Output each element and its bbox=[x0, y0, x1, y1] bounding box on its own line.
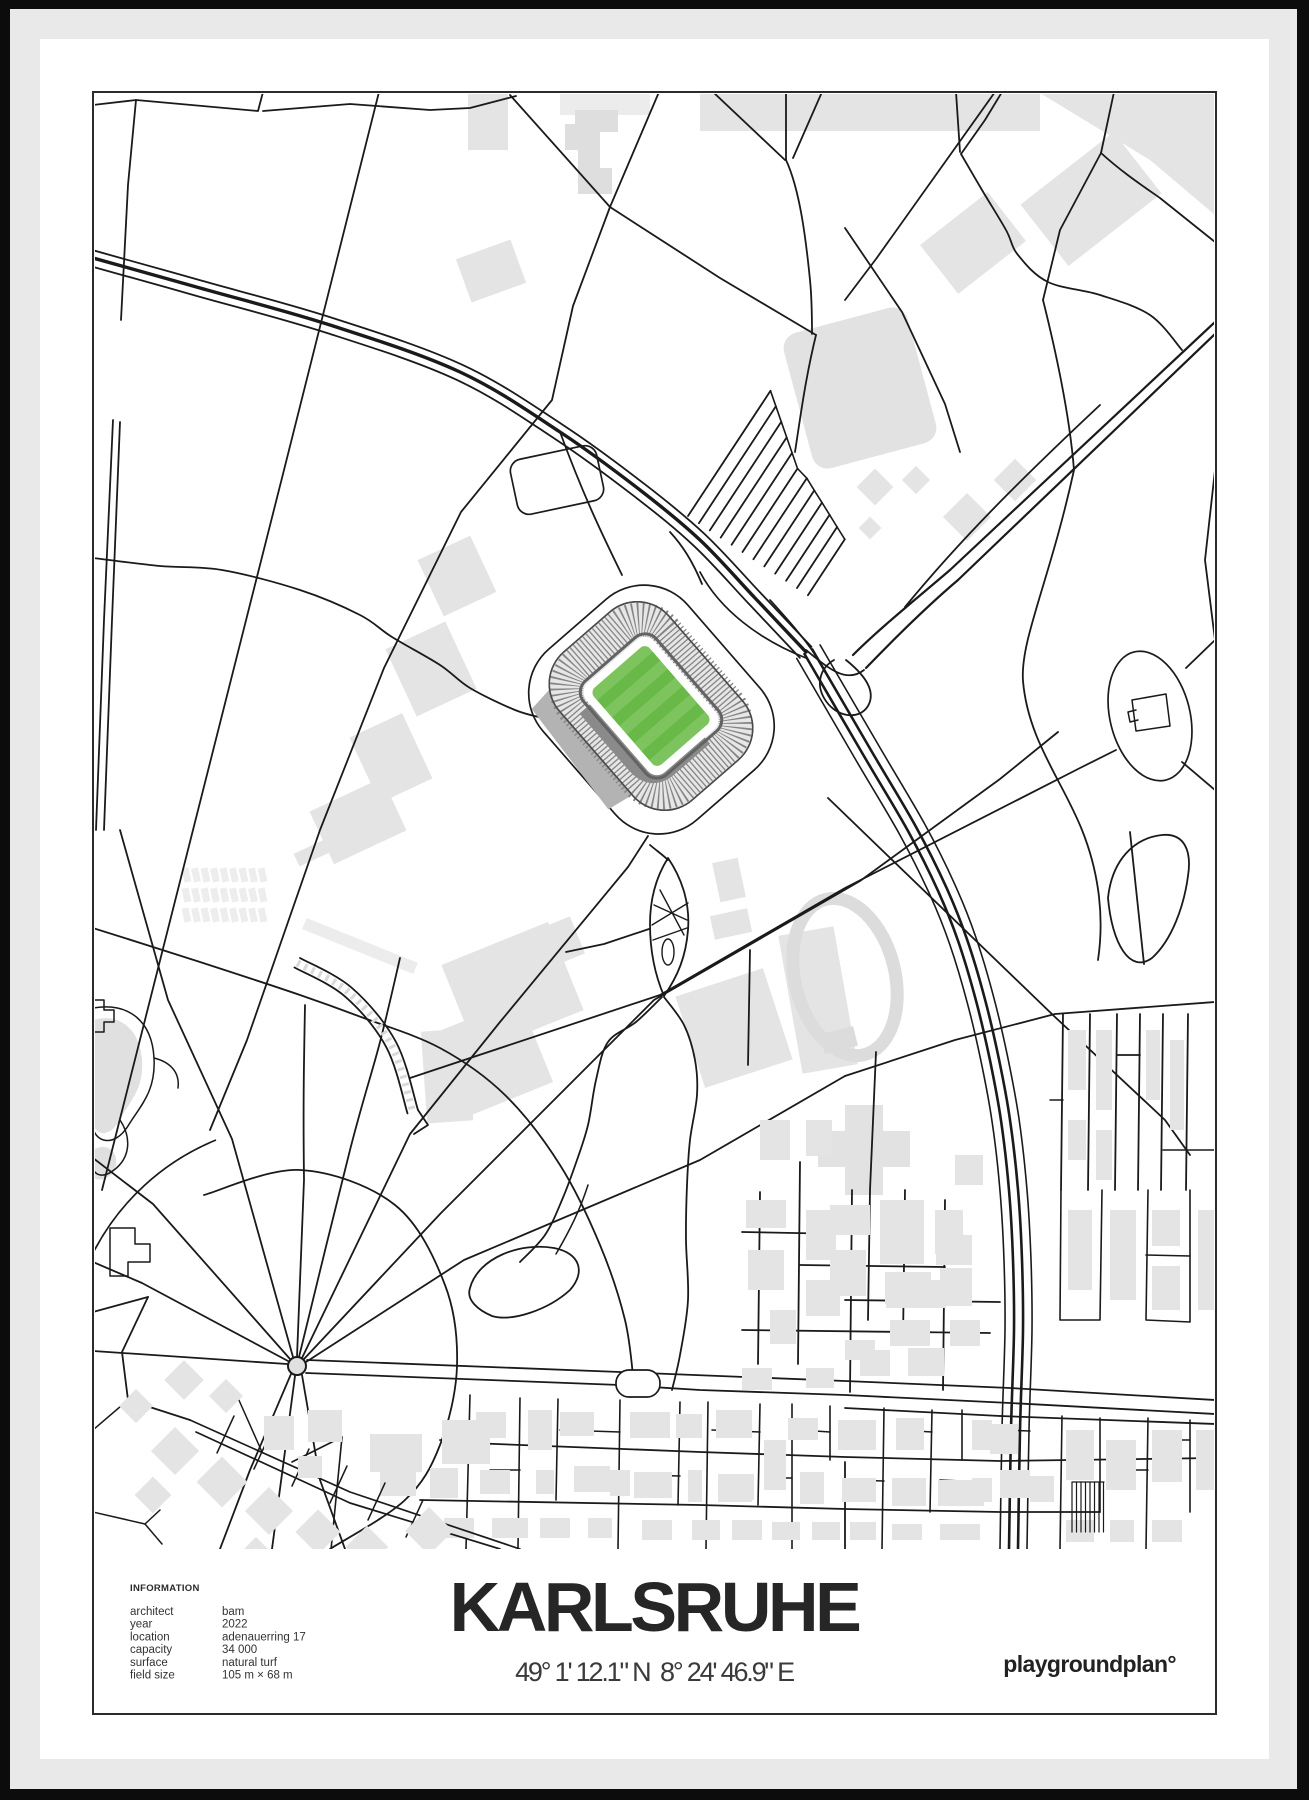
svg-text:adenauerring 17: adenauerring 17 bbox=[222, 1631, 306, 1643]
svg-text:year: year bbox=[130, 1619, 153, 1631]
svg-text:49° 1' 12.1" N 8° 24' 46.9" E: 49° 1' 12.1" N 8° 24' 46.9" E bbox=[515, 1657, 794, 1687]
svg-text:bam: bam bbox=[222, 1606, 244, 1618]
svg-text:natural turf: natural turf bbox=[222, 1657, 278, 1669]
svg-text:KARLSRUHE: KARLSRUHE bbox=[450, 1568, 860, 1646]
svg-text:34 000: 34 000 bbox=[222, 1644, 257, 1656]
svg-text:capacity: capacity bbox=[130, 1644, 172, 1656]
svg-text:location: location bbox=[130, 1631, 170, 1643]
svg-text:INFORMATION: INFORMATION bbox=[130, 1583, 200, 1594]
svg-text:105 m × 68 m: 105 m × 68 m bbox=[222, 1670, 293, 1682]
svg-text:surface: surface bbox=[130, 1657, 168, 1669]
svg-text:architect: architect bbox=[130, 1606, 174, 1618]
svg-text:field size: field size bbox=[130, 1670, 175, 1682]
svg-text:playgroundplan°: playgroundplan° bbox=[1003, 1651, 1176, 1677]
svg-text:2022: 2022 bbox=[222, 1619, 248, 1631]
